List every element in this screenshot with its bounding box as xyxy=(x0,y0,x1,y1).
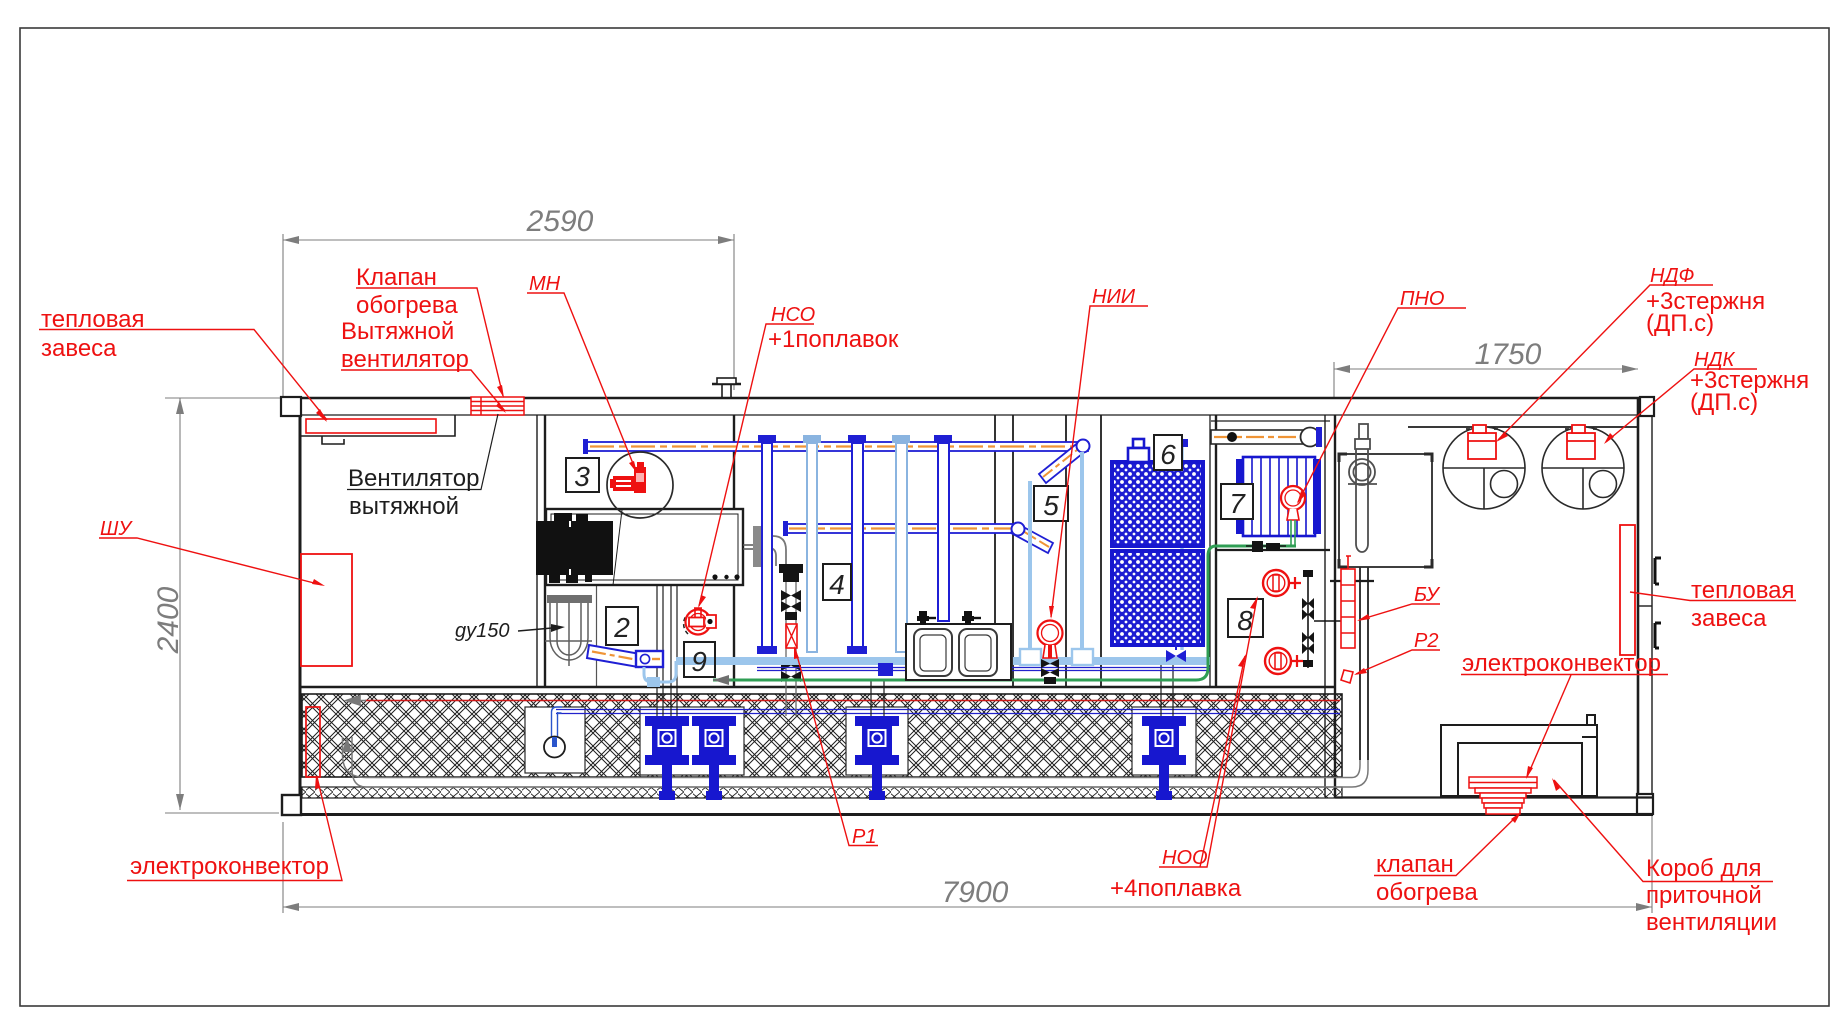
svg-text:НИИ: НИИ xyxy=(1092,286,1136,308)
svg-text:завеса: завеса xyxy=(1691,605,1767,632)
svg-text:2400: 2400 xyxy=(152,586,185,654)
svg-text:+4поплавка: +4поплавка xyxy=(1110,875,1242,902)
svg-text:Клапан: Клапан xyxy=(356,264,437,291)
svg-text:6: 6 xyxy=(1160,439,1176,470)
svg-text:приточной: приточной xyxy=(1646,882,1762,909)
svg-text:+1поплавок: +1поплавок xyxy=(768,326,899,353)
svg-text:9: 9 xyxy=(691,646,707,677)
svg-text:вентиляции: вентиляции xyxy=(1646,909,1777,936)
svg-text:Короб для: Короб для xyxy=(1646,855,1761,882)
svg-text:обогрева: обогрева xyxy=(1376,879,1478,906)
svg-text:БУ: БУ xyxy=(1414,584,1441,606)
svg-text:обогрева: обогрева xyxy=(356,292,458,319)
svg-text:3: 3 xyxy=(574,461,590,492)
svg-text:НСО: НСО xyxy=(771,304,815,326)
svg-text:МН: МН xyxy=(529,273,561,295)
svg-text:(ДП.с): (ДП.с) xyxy=(1690,389,1758,416)
svg-text:1750: 1750 xyxy=(1475,338,1542,371)
svg-text:gy150: gy150 xyxy=(455,620,510,642)
svg-text:Вытяжной: Вытяжной xyxy=(341,318,454,345)
svg-text:4: 4 xyxy=(829,569,845,600)
svg-text:электроконвектор: электроконвектор xyxy=(1462,650,1661,677)
svg-text:2: 2 xyxy=(613,612,630,643)
svg-text:7900: 7900 xyxy=(942,876,1009,909)
svg-text:Р1: Р1 xyxy=(852,826,876,848)
svg-text:5: 5 xyxy=(1043,490,1059,521)
svg-text:завеса: завеса xyxy=(41,335,117,362)
svg-text:вытяжной: вытяжной xyxy=(349,493,459,520)
svg-text:(ДП.с): (ДП.с) xyxy=(1646,310,1714,337)
svg-text:7: 7 xyxy=(1229,488,1246,519)
svg-text:ШУ: ШУ xyxy=(100,518,133,540)
svg-text:Р2: Р2 xyxy=(1414,630,1438,652)
svg-text:электроконвектор: электроконвектор xyxy=(130,853,329,880)
svg-text:вентилятор: вентилятор xyxy=(341,346,469,373)
svg-text:НДФ: НДФ xyxy=(1650,265,1695,287)
svg-text:2590: 2590 xyxy=(526,205,594,238)
svg-text:Вентилятор: Вентилятор xyxy=(348,465,479,492)
svg-text:клапан: клапан xyxy=(1376,851,1454,878)
svg-text:ПНО: ПНО xyxy=(1400,288,1445,310)
